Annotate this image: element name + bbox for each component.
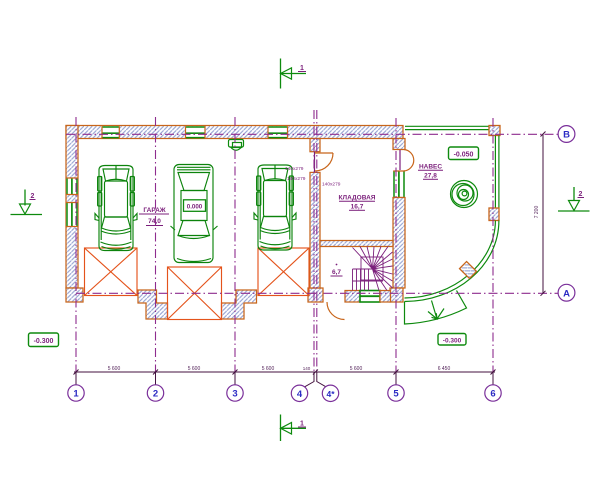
svg-text:5 600: 5 600 xyxy=(188,366,201,372)
svg-text:A: A xyxy=(563,288,570,299)
svg-text:27,8: 27,8 xyxy=(424,173,437,180)
svg-text:140x279: 140x279 xyxy=(322,182,341,188)
svg-text:7 200: 7 200 xyxy=(534,206,540,219)
svg-text:6: 6 xyxy=(490,389,495,400)
svg-text:140x279: 140x279 xyxy=(285,166,304,172)
svg-text:КЛАДОВАЯ: КЛАДОВАЯ xyxy=(339,195,376,202)
svg-text:-0.300: -0.300 xyxy=(443,337,462,344)
svg-text:2: 2 xyxy=(31,193,35,200)
svg-text:4: 4 xyxy=(297,389,303,400)
svg-text:ГАРАЖ: ГАРАЖ xyxy=(143,207,165,214)
svg-text:6 450: 6 450 xyxy=(438,366,451,372)
svg-text:1: 1 xyxy=(300,65,304,72)
svg-text:140: 140 xyxy=(303,366,311,371)
svg-text:2: 2 xyxy=(153,389,158,400)
svg-text:-0.300: -0.300 xyxy=(34,338,54,345)
svg-text:1: 1 xyxy=(300,421,304,428)
svg-text:140x279: 140x279 xyxy=(287,176,306,182)
svg-text:0.000: 0.000 xyxy=(187,204,203,211)
svg-text:16,7: 16,7 xyxy=(351,204,364,211)
svg-text:3: 3 xyxy=(232,389,237,400)
svg-text:НАВЕС: НАВЕС xyxy=(419,164,442,171)
svg-text:5 600: 5 600 xyxy=(350,366,363,372)
svg-text:2: 2 xyxy=(579,191,583,198)
svg-text:-0.050: -0.050 xyxy=(454,151,474,158)
svg-text:5: 5 xyxy=(393,389,399,400)
svg-text:5 600: 5 600 xyxy=(108,366,121,372)
svg-text:5 600: 5 600 xyxy=(262,366,275,372)
svg-text:6,7: 6,7 xyxy=(332,269,341,276)
svg-text:1: 1 xyxy=(73,389,79,400)
svg-text:B: B xyxy=(563,130,570,141)
svg-text:4*: 4* xyxy=(326,389,335,399)
svg-text:74,0: 74,0 xyxy=(148,218,161,225)
